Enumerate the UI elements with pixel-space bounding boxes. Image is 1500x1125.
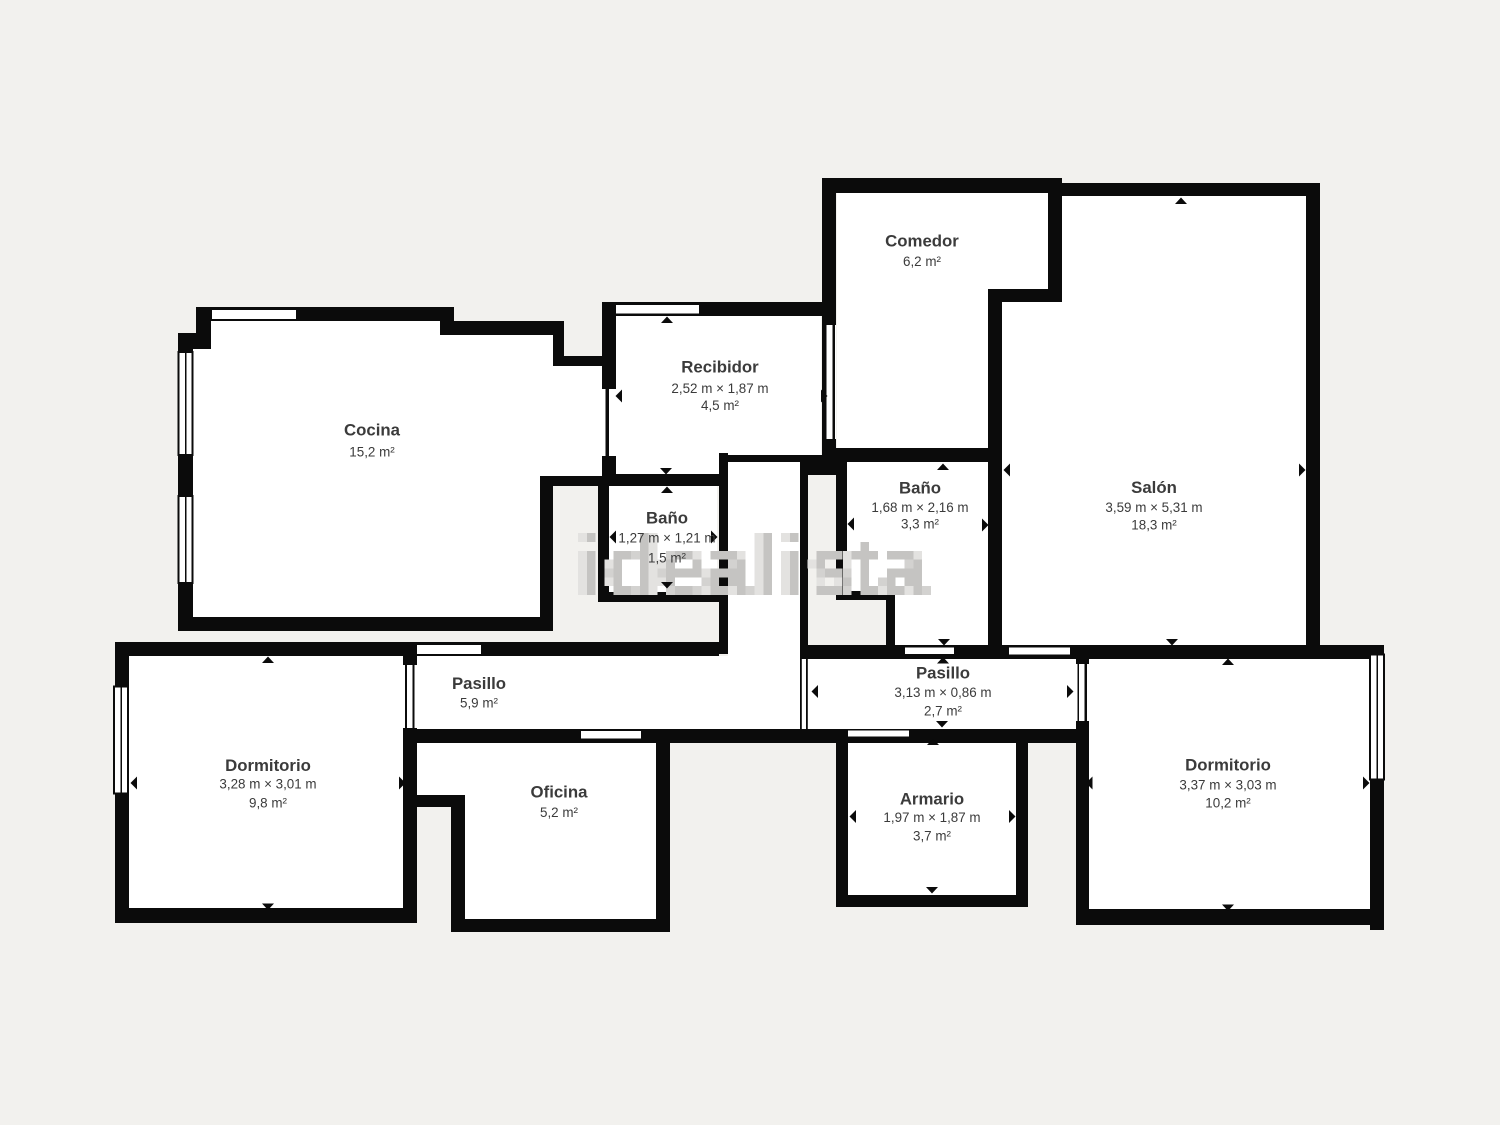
svg-text:5,9 m²: 5,9 m²: [460, 696, 498, 711]
svg-text:3,7 m²: 3,7 m²: [913, 829, 951, 844]
svg-text:15,2 m²: 15,2 m²: [349, 445, 395, 460]
svg-text:1,68 m × 2,16 m: 1,68 m × 2,16 m: [871, 500, 968, 515]
svg-text:Dormitorio: Dormitorio: [1185, 756, 1271, 775]
svg-text:4,5 m²: 4,5 m²: [701, 398, 739, 413]
svg-text:2,52 m × 1,87 m: 2,52 m × 1,87 m: [671, 381, 768, 396]
svg-text:Oficina: Oficina: [531, 783, 589, 802]
svg-text:3,13 m × 0,86 m: 3,13 m × 0,86 m: [894, 685, 991, 700]
svg-text:Pasillo: Pasillo: [452, 674, 506, 693]
svg-text:3,59 m × 5,31 m: 3,59 m × 5,31 m: [1105, 500, 1202, 515]
svg-text:Recibidor: Recibidor: [681, 358, 759, 377]
svg-text:Armario: Armario: [900, 790, 964, 809]
svg-text:10,2 m²: 10,2 m²: [1205, 796, 1251, 811]
svg-text:Dormitorio: Dormitorio: [225, 756, 311, 775]
svg-text:2,7 m²: 2,7 m²: [924, 704, 962, 719]
svg-text:Salón: Salón: [1131, 478, 1177, 497]
svg-text:5,2 m²: 5,2 m²: [540, 805, 578, 820]
svg-text:Baño: Baño: [646, 509, 688, 528]
svg-text:3,37 m × 3,03 m: 3,37 m × 3,03 m: [1179, 778, 1276, 793]
svg-text:9,8 m²: 9,8 m²: [249, 796, 287, 811]
svg-text:Pasillo: Pasillo: [916, 664, 970, 683]
svg-text:1,27 m × 1,21 m: 1,27 m × 1,21 m: [618, 531, 715, 546]
svg-text:3,3 m²: 3,3 m²: [901, 517, 939, 532]
svg-text:18,3 m²: 18,3 m²: [1131, 518, 1177, 533]
svg-text:Comedor: Comedor: [885, 232, 959, 251]
svg-text:1,97 m × 1,87 m: 1,97 m × 1,87 m: [883, 810, 980, 825]
svg-text:Cocina: Cocina: [344, 421, 401, 440]
svg-text:Baño: Baño: [899, 479, 941, 498]
svg-text:1,5 m²: 1,5 m²: [648, 551, 686, 566]
svg-text:3,28 m × 3,01 m: 3,28 m × 3,01 m: [219, 777, 316, 792]
svg-text:6,2 m²: 6,2 m²: [903, 254, 941, 269]
